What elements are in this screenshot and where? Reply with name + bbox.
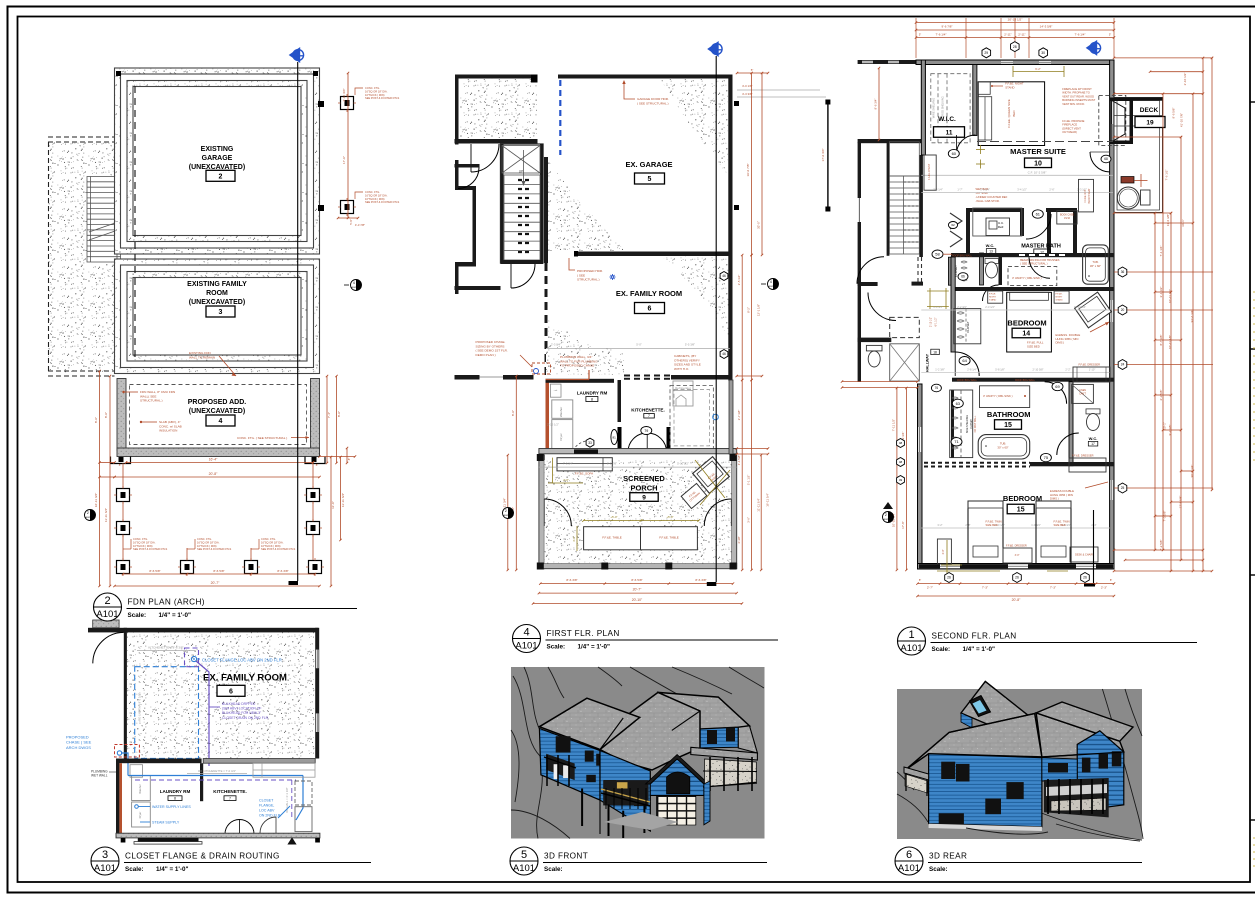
svg-text:3'-0": 3'-0" [942, 549, 945, 554]
svg-text:12'-1 1/8": 12'-1 1/8" [757, 304, 761, 316]
svg-text:16'-4": 16'-4" [209, 458, 218, 462]
svg-text:SEE POST & FOOTER DTLS: SEE POST & FOOTER DTLS [365, 200, 400, 204]
svg-text:W.I.C.: W.I.C. [938, 116, 956, 123]
svg-text:1/4" = 1'-0": 1/4" = 1'-0" [578, 644, 611, 651]
svg-text:3: 3 [102, 849, 108, 861]
svg-text:6'-2": 6'-2" [1035, 67, 1041, 71]
svg-text:SEE POST & FOOTER DTLS: SEE POST & FOOTER DTLS [261, 547, 296, 551]
svg-text:15/16: 15/16 [1064, 217, 1071, 220]
svg-text:SECOND FLR. PLAN: SECOND FLR. PLAN [932, 632, 1017, 641]
svg-text:PORCH: PORCH [630, 484, 657, 493]
svg-text:EX. FAMILY ROOM: EX. FAMILY ROOM [203, 673, 287, 684]
svg-text:FIRST FLR. PLAN: FIRST FLR. PLAN [547, 629, 620, 638]
svg-text:A101: A101 [513, 863, 535, 874]
svg-text:LAUNDRY RM: LAUNDRY RM [577, 391, 608, 396]
svg-text:16"SQ OR 18" DIA.: 16"SQ OR 18" DIA. [365, 89, 388, 93]
svg-text:17: 17 [1091, 442, 1095, 446]
svg-text:F.F.&E. DRESSER: F.F.&E. DRESSER [1006, 545, 1027, 548]
svg-text:5": 5" [751, 68, 754, 72]
svg-text:1: 1 [908, 629, 914, 641]
svg-text:3' VANITY ( DBL SINK ): 3' VANITY ( DBL SINK ) [983, 394, 1013, 398]
svg-text:1'-7": 1'-7" [957, 188, 962, 192]
svg-text:DECK: DECK [1140, 107, 1159, 114]
svg-text:10: 10 [1034, 160, 1042, 167]
svg-text:KITCHENETTE.: KITCHENETTE. [631, 408, 664, 413]
svg-text:16"SQ OR 18" DIA.: 16"SQ OR 18" DIA. [133, 540, 156, 544]
svg-text:9'-2 3/8": 9'-2 3/8" [1168, 425, 1172, 436]
svg-text:RO KITCHENETTE = 7'-0 3/4": RO KITCHENETTE = 7'-0 3/4" [198, 769, 236, 773]
svg-text:19: 19 [1146, 119, 1154, 126]
svg-text:7'-11 1/2": 7'-11 1/2" [892, 419, 896, 431]
svg-text:2'-10 1/2": 2'-10 1/2" [930, 317, 933, 327]
svg-text:CLOSET FLANGE LOC ABV ON 2ND F: CLOSET FLANGE LOC ABV ON 2ND FLR [202, 658, 282, 663]
svg-text:HALLWAY: HALLWAY [926, 353, 930, 372]
svg-text:SIDE SHELVING: SIDE SHELVING [966, 415, 969, 433]
svg-text:2'-7 3/8": 2'-7 3/8" [737, 410, 741, 421]
svg-text:16"SQ OR 18" DIA.: 16"SQ OR 18" DIA. [197, 540, 220, 544]
svg-text:W.C.: W.C. [986, 243, 995, 248]
svg-text:8": 8" [347, 458, 351, 461]
svg-text:LOC ABV: LOC ABV [259, 809, 275, 813]
svg-text:VENT OUT REAR. WOOD: VENT OUT REAR. WOOD [1062, 94, 1094, 98]
svg-text:SEE POST & FOOTER DTLS: SEE POST & FOOTER DTLS [365, 96, 400, 100]
svg-text:STAND: STAND [1005, 85, 1014, 89]
svg-text:UP: UP [519, 170, 523, 174]
svg-text:DIMS ): DIMS ) [1056, 341, 1065, 345]
svg-text:CONC. FTG.: CONC. FTG. [197, 537, 212, 541]
svg-text:79: 79 [644, 429, 648, 433]
svg-text:3: 3 [219, 309, 223, 316]
svg-text:CLOSET FLANGE & DRAIN ROUTING: CLOSET FLANGE & DRAIN ROUTING [125, 852, 280, 861]
svg-text:7'-3": 7'-3" [982, 586, 988, 590]
svg-text:20'-8": 20'-8" [209, 472, 218, 476]
svg-text:( SEE STRUCTURAL ): ( SEE STRUCTURAL ) [637, 101, 669, 105]
svg-text:75: 75 [1044, 455, 1049, 460]
svg-text:4: 4 [353, 281, 355, 285]
svg-text:FLANGE,: FLANGE, [259, 804, 274, 808]
svg-text:4'-1 5/8": 4'-1 5/8" [737, 455, 741, 466]
svg-text:F.F.&E. 6 FT: F.F.&E. 6 FT [1084, 189, 1087, 203]
svg-text:Scale:: Scale: [932, 646, 951, 653]
svg-text:Scale:: Scale: [929, 866, 948, 873]
svg-text:cab: cab [554, 390, 558, 392]
svg-text:2: 2 [87, 511, 89, 515]
svg-text:CONC. FTG. ( SEE STRUCTURAL ): CONC. FTG. ( SEE STRUCTURAL ) [237, 436, 287, 440]
svg-text:8: 8 [591, 398, 593, 402]
svg-text:1/4" = 1'-0": 1/4" = 1'-0" [159, 612, 192, 619]
svg-text:4: 4 [770, 280, 772, 284]
svg-text:10"THICK ( MIN): 10"THICK ( MIN) [365, 197, 385, 201]
svg-text:20'-7": 20'-7" [211, 581, 220, 585]
svg-text:4'-0": 4'-0" [563, 478, 569, 482]
svg-text:5'-8 1/8": 5'-8 1/8" [995, 367, 1005, 371]
svg-text:BULKHEAD FOR NEW 3": BULKHEAD FOR NEW 3" [222, 711, 262, 715]
svg-text:3D FRONT: 3D FRONT [544, 852, 588, 861]
svg-text:17'-8 5/8": 17'-8 5/8" [1178, 496, 1182, 509]
svg-text:CONC. FTG.: CONC. FTG. [365, 190, 380, 194]
svg-text:6: 6 [648, 305, 652, 312]
svg-text:F.F.&E. DRESSER: F.F.&E. DRESSER [1072, 454, 1094, 458]
svg-text:92'-6 3/4": 92'-6 3/4" [1190, 310, 1194, 323]
svg-text:2'-11": 2'-11" [1018, 32, 1025, 36]
svg-text:WALL TO REMAIN: WALL TO REMAIN [189, 355, 215, 359]
svg-text:2'-10 1/2": 2'-10 1/2" [547, 423, 559, 427]
svg-text:8'-2": 8'-2" [746, 307, 750, 313]
svg-text:STAND: STAND [989, 299, 997, 302]
svg-text:STRUCTURAL ): STRUCTURAL ) [140, 399, 163, 403]
svg-text:8'-6 3/8": 8'-6 3/8" [695, 578, 706, 582]
svg-text:2'-5 1/4": 2'-5 1/4" [933, 188, 943, 192]
svg-text:Washer: Washer [559, 407, 563, 417]
svg-text:Scale:: Scale: [544, 866, 563, 873]
svg-text:WITH H.O.: WITH H.O. [674, 367, 689, 371]
svg-text:4: 4 [219, 418, 223, 425]
svg-text:F.F.&E.CHEST: F.F.&E.CHEST [928, 163, 931, 180]
svg-text:A101: A101 [96, 609, 118, 620]
svg-text:7'-1 1/4": 7'-1 1/4" [1159, 246, 1163, 257]
svg-text:5'-9": 5'-9" [349, 219, 353, 225]
svg-text:58: 58 [935, 252, 940, 257]
svg-text:62: 62 [951, 223, 955, 227]
svg-text:3'-0": 3'-0" [572, 536, 576, 542]
svg-text:STEAM SUPPLY: STEAM SUPPLY [152, 820, 180, 824]
svg-text:MASTER SUITE: MASTER SUITE [1010, 147, 1066, 156]
svg-text:46: 46 [722, 352, 726, 356]
svg-text:90'-5 3/4": 90'-5 3/4" [1190, 465, 1194, 478]
svg-text:CONC. FTG.: CONC. FTG. [261, 537, 276, 541]
svg-text:7: 7 [648, 414, 650, 418]
svg-text:10"THICK ( MIN): 10"THICK ( MIN) [261, 544, 281, 548]
svg-text:4'-3 7/8": 4'-3 7/8" [355, 223, 365, 227]
svg-text:7: 7 [229, 797, 231, 801]
svg-text:+5'-0": +5'-0" [666, 515, 673, 519]
svg-text:SIZE BED: SIZE BED [986, 523, 998, 527]
svg-text:BENCH SEAT: BENCH SEAT [1088, 188, 1091, 204]
svg-text:STAND: STAND [1056, 299, 1064, 302]
svg-text:1'-2 3/8": 1'-2 3/8" [935, 367, 945, 371]
svg-text:16"SQ OR 18" DIA.: 16"SQ OR 18" DIA. [261, 540, 284, 544]
svg-text:2'-10 3/4": 2'-10 3/4" [342, 88, 346, 101]
svg-text:14: 14 [1022, 330, 1030, 337]
svg-text:6'-1 1/2": 6'-1 1/2" [935, 317, 938, 326]
svg-text:11'-6": 11'-6" [331, 501, 335, 509]
svg-text:STRUCTURAL ): STRUCTURAL ) [577, 278, 600, 282]
svg-text:2'-10 1/2": 2'-10 1/2" [1183, 73, 1187, 86]
svg-text:36: 36 [1121, 270, 1125, 274]
svg-text:10'-11 1/2": 10'-11 1/2" [1168, 289, 1172, 303]
svg-text:8'-6 5/8": 8'-6 5/8" [213, 569, 224, 573]
svg-text:3'-4 1/4": 3'-4 1/4" [933, 305, 943, 309]
svg-text:48: 48 [899, 460, 903, 464]
svg-text:9'-6 7/8": 9'-6 7/8" [942, 25, 953, 29]
svg-text:3' VANITY ( DBL SINK ): 3' VANITY ( DBL SINK ) [1012, 276, 1042, 280]
svg-text:11'-11 3/4": 11'-11 3/4" [341, 493, 345, 507]
svg-text:10'-11 1/8": 10'-11 1/8" [1168, 335, 1172, 349]
svg-text:81: 81 [613, 436, 617, 440]
svg-text:Scale:: Scale: [128, 612, 147, 619]
svg-text:NIGHT: NIGHT [989, 297, 996, 299]
svg-text:CLOSET: CLOSET [970, 419, 973, 429]
svg-text:F.F.&E. TWIN: F.F.&E. TWIN [986, 520, 1002, 524]
svg-text:10'-10 1/4": 10'-10 1/4" [1074, 305, 1086, 309]
svg-text:3'-6": 3'-6" [746, 517, 750, 523]
svg-text:6'-5 7/8": 6'-5 7/8" [607, 462, 617, 466]
svg-text:26: 26 [1083, 576, 1087, 580]
svg-text:(SIM ABV) LOCATION OF: (SIM ABV) LOCATION OF [222, 707, 262, 711]
svg-text:2: 2 [104, 595, 110, 607]
svg-text:2'-6": 2'-6" [1049, 188, 1054, 192]
svg-text:32'-0": 32'-0" [757, 221, 761, 229]
svg-text:DIMS ): DIMS ) [1050, 497, 1059, 501]
svg-text:4: 4 [523, 627, 529, 639]
svg-text:3'-4 1/2": 3'-4 1/2" [1017, 188, 1027, 192]
svg-text:F.F.&E. QUEEN SIZE: F.F.&E. QUEEN SIZE [1007, 99, 1011, 128]
svg-text:ROOF BRG WALL: ROOF BRG WALL [957, 379, 978, 382]
svg-text:C.F. 10'-2 5/8": C.F. 10'-2 5/8" [1028, 170, 1047, 174]
svg-text:CLOSET: CLOSET [966, 321, 970, 332]
svg-text:1'-10": 1'-10" [1089, 367, 1096, 371]
svg-text:(UNEXCAVATED): (UNEXCAVATED) [189, 408, 245, 415]
svg-text:F.F.&E.: F.F.&E. [1056, 294, 1063, 296]
svg-text:2'-3 3/4": 2'-3 3/4" [551, 343, 561, 347]
svg-text:7'-3 3/4": 7'-3 3/4" [563, 462, 573, 466]
svg-text:28: 28 [1013, 45, 1017, 49]
svg-text:7'-6 1/2": 7'-6 1/2" [1165, 170, 1169, 181]
svg-text:61: 61 [1036, 211, 1041, 216]
svg-text:10"THICK ( MIN): 10"THICK ( MIN) [365, 93, 385, 97]
svg-text:8": 8" [919, 578, 921, 582]
svg-text:Refr.: Refr. [998, 225, 1005, 229]
svg-text:7'-3": 7'-3" [1050, 586, 1056, 590]
svg-text:20: 20 [1121, 308, 1125, 312]
svg-text:2'-10 5/8": 2'-10 5/8" [1033, 367, 1044, 371]
svg-text:60: 60 [952, 151, 957, 156]
svg-text:8": 8" [1110, 578, 1112, 582]
svg-text:3'-6 1/4": 3'-6 1/4" [980, 188, 990, 192]
svg-text:A101: A101 [94, 863, 116, 874]
svg-text:5": 5" [919, 32, 921, 36]
svg-text:CONC. FTG.: CONC. FTG. [133, 537, 148, 541]
svg-text:7'-4": 7'-4" [327, 412, 331, 418]
svg-text:8'-6 5/8": 8'-6 5/8" [631, 578, 642, 582]
svg-text:20'-8": 20'-8" [1012, 598, 1021, 602]
svg-text:F.F.&E. DRESSER: F.F.&E. DRESSER [1079, 363, 1101, 367]
svg-text:20'-10": 20'-10" [632, 598, 643, 602]
svg-text:2'-2": 2'-2" [1065, 367, 1070, 371]
svg-text:8: 8 [174, 797, 176, 801]
svg-text:FDN PLAN (ARCH): FDN PLAN (ARCH) [128, 598, 205, 607]
svg-text:2'-3": 2'-3" [1101, 586, 1107, 590]
svg-text:BEDROOM: BEDROOM [1007, 319, 1046, 328]
svg-text:16'-11 3/4": 16'-11 3/4" [766, 493, 770, 507]
svg-text:15: 15 [1017, 506, 1025, 513]
svg-text:( SEE STRUCTURAL ): ( SEE STRUCTURAL ) [1020, 262, 1047, 266]
svg-text:6: 6 [229, 688, 233, 695]
svg-text:16'-6 7/8": 16'-6 7/8" [746, 163, 750, 176]
svg-text:ON 2ND FLR.: ON 2ND FLR. [259, 814, 281, 818]
svg-text:26: 26 [947, 576, 951, 580]
svg-text:BATHROOM: BATHROOM [987, 410, 1031, 419]
svg-text:8'-6 3/8": 8'-6 3/8" [277, 569, 288, 573]
svg-text:VENT MIN. ROOF.: VENT MIN. ROOF. [1062, 102, 1085, 106]
svg-text:8'-6 3/8": 8'-6 3/8" [566, 578, 577, 582]
svg-text:F.F.&E. TWIN: F.F.&E. TWIN [1054, 520, 1070, 524]
svg-text:11'-6 3/8": 11'-6 3/8" [1166, 214, 1170, 226]
svg-text:ROOM: ROOM [206, 290, 228, 297]
svg-text:46: 46 [722, 274, 726, 278]
svg-text:GARAGE: GARAGE [202, 155, 233, 162]
svg-text:41'-10 7/8": 41'-10 7/8" [1180, 113, 1184, 127]
svg-text:SEE POST & FOOTER DTLS: SEE POST & FOOTER DTLS [133, 547, 168, 551]
svg-text:WATER SUPPLY LINES: WATER SUPPLY LINES [152, 805, 191, 809]
svg-text:KITCHENETTE = 8'-6 3/8": KITCHENETTE = 8'-6 3/8" [148, 646, 183, 650]
svg-text:(DIRECT VENT: (DIRECT VENT [1062, 126, 1081, 130]
svg-text:CLOSET DRAIN ON 2ND FLR.: CLOSET DRAIN ON 2ND FLR. [222, 716, 269, 720]
svg-text:DEMO PLAN ): DEMO PLAN ) [476, 353, 496, 357]
svg-text:SEE POST & FOOTER DTLS: SEE POST & FOOTER DTLS [197, 547, 232, 551]
svg-text:16"SQ OR 18" DIA.: 16"SQ OR 18" DIA. [365, 193, 388, 197]
svg-text:9'-6 5/8": 9'-6 5/8" [1171, 108, 1175, 119]
svg-text:30" x 60": 30" x 60" [997, 445, 1008, 449]
svg-text:PROPOSED ADD.: PROPOSED ADD. [188, 399, 247, 406]
svg-text:2'-2 3/4": 2'-2 3/4" [957, 305, 967, 309]
svg-text:63: 63 [956, 401, 961, 406]
svg-text:36" x 60": 36" x 60" [1090, 264, 1101, 268]
svg-text:7'-2 5/8": 7'-2 5/8" [1159, 540, 1163, 551]
svg-text:WET WALL: WET WALL [91, 774, 108, 778]
svg-text:69: 69 [1055, 384, 1060, 389]
svg-text:8'-6": 8'-6" [511, 410, 515, 416]
svg-text:8": 8" [316, 463, 319, 467]
svg-text:4'-10": 4'-10" [737, 536, 741, 543]
svg-text:14'-3 5/8": 14'-3 5/8" [1040, 25, 1053, 29]
svg-text:EXISTING FAMILY: EXISTING FAMILY [187, 281, 247, 288]
svg-text:20'-7": 20'-7" [633, 588, 642, 592]
svg-text:5: 5 [648, 176, 652, 183]
svg-text:F.F.&E. TABLE: F.F.&E. TABLE [602, 536, 622, 540]
svg-text:WIRE SHELVING: WIRE SHELVING [932, 98, 936, 118]
svg-text:4'-0 1/8": 4'-0 1/8" [742, 84, 753, 88]
svg-text:BEAM BRG'ING FOR TRUSSES: BEAM BRG'ING FOR TRUSSES [1020, 258, 1059, 262]
svg-text:DESK & CHAIR: DESK & CHAIR [1075, 554, 1093, 557]
svg-text:F.F.&E. TABLE: F.F.&E. TABLE [659, 536, 679, 540]
svg-text:5'-10 1/2": 5'-10 1/2" [677, 462, 689, 466]
svg-text:+5'-0": +5'-0" [610, 515, 617, 519]
svg-text:1/4" = 1'-0": 1/4" = 1'-0" [156, 866, 189, 873]
svg-text:10"THICK ( MIN): 10"THICK ( MIN) [197, 544, 217, 548]
svg-text:8'-6": 8'-6" [104, 412, 108, 418]
svg-text:F.F.&E.: F.F.&E. [989, 294, 996, 296]
svg-text:5": 5" [1109, 32, 1111, 36]
svg-text:11'-11 3/4": 11'-11 3/4" [104, 508, 108, 522]
svg-text:-WALL CAB STOR.: -WALL CAB STOR. [976, 199, 1000, 203]
svg-text:16'-11 3/4": 16'-11 3/4" [94, 493, 98, 508]
svg-text:5'-5 3/8": 5'-5 3/8" [685, 343, 695, 347]
svg-text:2'-8 1/4": 2'-8 1/4" [967, 367, 977, 371]
svg-text:8'-7 3/8": 8'-7 3/8" [1159, 335, 1163, 346]
svg-text:8'-6": 8'-6" [94, 417, 98, 423]
svg-text:SIZE BED: SIZE BED [1027, 344, 1040, 348]
svg-text:RO LNDRY = 8'-5 1/8": RO LNDRY = 8'-5 1/8" [138, 693, 142, 721]
svg-text:24: 24 [1121, 363, 1125, 367]
svg-text:NIGHT: NIGHT [1056, 297, 1063, 299]
svg-text:11'-11 3/4": 11'-11 3/4" [757, 498, 761, 511]
svg-text:3'-2": 3'-2" [937, 523, 942, 527]
svg-text:30: 30 [1041, 51, 1045, 55]
svg-text:F.F.&E. SOFA: F.F.&E. SOFA [575, 472, 593, 476]
svg-text:ROOF BRG WALL: ROOF BRG WALL [1015, 379, 1036, 382]
svg-text:3D REAR: 3D REAR [929, 852, 967, 861]
svg-text:FIREPLACE: FIREPLACE [1062, 123, 1077, 127]
svg-text:EXISTING: EXISTING [201, 146, 234, 153]
svg-text:2: 2 [505, 509, 507, 513]
svg-text:26: 26 [1015, 576, 1019, 580]
svg-text:2'-3 1/4": 2'-3 1/4" [985, 305, 995, 309]
svg-text:TO PROPOSED CHASE: TO PROPOSED CHASE [560, 364, 594, 368]
svg-text:2: 2 [885, 513, 887, 517]
svg-text:1/4" = 1'-0": 1/4" = 1'-0" [963, 646, 996, 653]
svg-text:Washer: Washer [138, 784, 142, 794]
svg-text:3'-1 1/2": 3'-1 1/2" [746, 475, 750, 486]
svg-text:(UNEXCAVATED): (UNEXCAVATED) [189, 299, 245, 306]
svg-text:EX. FAMILY ROOM: EX. FAMILY ROOM [616, 289, 682, 298]
svg-text:SIZE BED: SIZE BED [1054, 523, 1066, 527]
svg-text:Dryer: Dryer [559, 433, 563, 440]
svg-text:2: 2 [219, 173, 223, 180]
svg-text:7'-3 5/8": 7'-3 5/8" [1162, 511, 1166, 522]
svg-text:4'-3 3/8": 4'-3 3/8" [742, 92, 753, 96]
svg-text:2'-3 5/8": 2'-3 5/8" [1159, 390, 1163, 401]
svg-text:BULKHEAD DRPPED: BULKHEAD DRPPED [222, 702, 256, 706]
svg-text:7'-6 1/4": 7'-6 1/4" [1075, 32, 1086, 36]
svg-text:2'-11": 2'-11" [1004, 32, 1011, 36]
svg-text:11: 11 [946, 129, 953, 136]
svg-text:3'-0": 3'-0" [1015, 554, 1020, 557]
svg-text:5'-0": 5'-0" [636, 343, 642, 347]
svg-text:9'-6 3/4": 9'-6 3/4" [874, 99, 878, 110]
svg-text:Scale:: Scale: [547, 644, 566, 651]
svg-text:ARCH DWGS: ARCH DWGS [66, 745, 91, 750]
svg-text:25: 25 [1121, 486, 1125, 490]
svg-text:3'-1 1/2": 3'-1 1/2" [1159, 287, 1163, 298]
svg-text:68: 68 [1104, 157, 1108, 161]
svg-text:INSULATION: INSULATION [159, 429, 177, 433]
svg-text:F.F.&E. PROPANE: F.F.&E. PROPANE [1062, 119, 1084, 123]
svg-text:EX. GARAGE: EX. GARAGE [625, 160, 672, 169]
svg-text:CAB'T: CAB'T [1079, 393, 1086, 396]
svg-text:8'-6": 8'-6" [337, 411, 341, 417]
svg-text:Scale:: Scale: [125, 866, 144, 873]
svg-text:7'-6 1/4": 7'-6 1/4" [936, 32, 947, 36]
svg-text:A101: A101 [900, 643, 922, 654]
svg-text:2'-5 3/4": 2'-5 3/4" [737, 275, 741, 286]
svg-text:48: 48 [899, 441, 903, 445]
svg-text:10'-1": 10'-1" [1162, 422, 1166, 430]
svg-text:Dryer: Dryer [138, 812, 142, 819]
svg-text:FIREPLACE 48" FRONT: FIREPLACE 48" FRONT [1062, 87, 1092, 91]
svg-text:29: 29 [984, 51, 988, 55]
svg-text:17'-8": 17'-8" [901, 521, 905, 529]
svg-text:8": 8" [119, 463, 122, 467]
svg-text:17'-6": 17'-6" [342, 156, 346, 164]
svg-text:17'-6 3/4": 17'-6 3/4" [821, 148, 825, 161]
svg-text:9: 9 [642, 494, 646, 501]
svg-text:6: 6 [906, 849, 912, 861]
svg-text:WIDTH. PROPANE TO: WIDTH. PROPANE TO [1062, 91, 1090, 95]
svg-text:W.C.: W.C. [1089, 436, 1098, 441]
svg-text:33: 33 [588, 441, 592, 445]
svg-text:76: 76 [935, 386, 939, 390]
